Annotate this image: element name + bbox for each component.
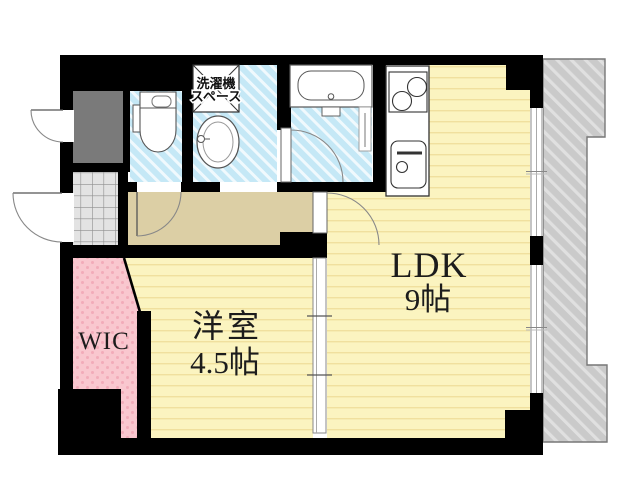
balcony-area — [543, 59, 607, 442]
bathtub-icon — [290, 65, 372, 107]
laundry-label-line2: スペース — [191, 89, 241, 104]
western-room-label: 洋室 — [192, 308, 262, 344]
ldk-label: LDK — [391, 245, 468, 285]
floorplan-svg: 洗濯機 スペース WIC 洋室 4.5帖 LDK 9帖 — [0, 0, 640, 480]
storage-box — [73, 91, 123, 163]
ldk-size-label: 9帖 — [405, 282, 452, 317]
storage-door — [31, 110, 63, 142]
floorplan: 洗濯機 スペース WIC 洋室 4.5帖 LDK 9帖 — [0, 0, 640, 480]
entrance-door — [13, 193, 62, 242]
genkan-floor — [73, 172, 118, 247]
kitchen-counter — [386, 66, 429, 196]
stove-icon — [389, 72, 427, 112]
wic-label: WIC — [78, 328, 130, 355]
kitchen-sink-icon — [391, 141, 426, 188]
western-room-size-label: 4.5帖 — [190, 345, 260, 380]
washbasin-icon — [197, 116, 239, 168]
